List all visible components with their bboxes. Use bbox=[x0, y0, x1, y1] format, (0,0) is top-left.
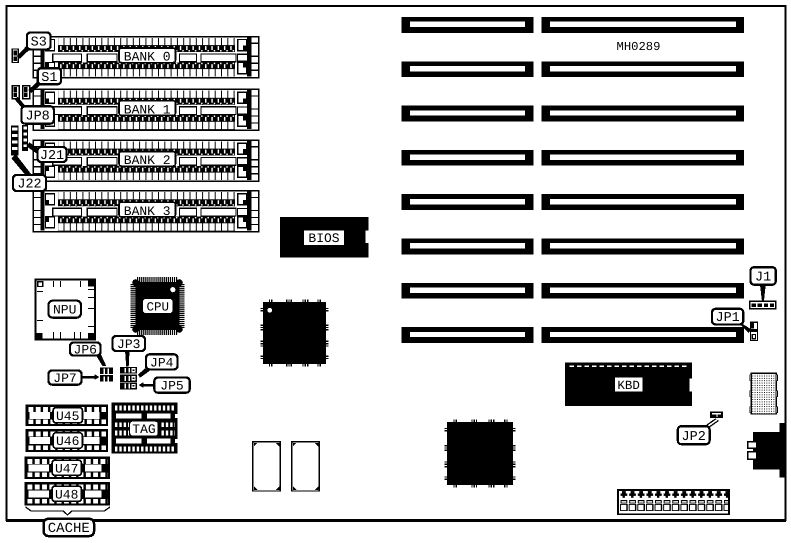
svg-text:JP8: JP8 bbox=[25, 110, 49, 125]
svg-text:BANK 1: BANK 1 bbox=[124, 102, 171, 117]
svg-text:JP3: JP3 bbox=[117, 337, 140, 352]
svg-text:BIOS: BIOS bbox=[308, 231, 339, 246]
svg-text:JP1: JP1 bbox=[715, 311, 739, 326]
svg-text:S3: S3 bbox=[31, 36, 47, 51]
svg-text:KBD: KBD bbox=[617, 379, 640, 393]
svg-text:BANK 0: BANK 0 bbox=[124, 50, 171, 65]
svg-text:JP6: JP6 bbox=[74, 342, 97, 357]
svg-text:JP7: JP7 bbox=[53, 371, 76, 386]
svg-text:U45: U45 bbox=[56, 409, 79, 424]
svg-text:NPU: NPU bbox=[53, 302, 76, 317]
svg-text:JP2: JP2 bbox=[682, 430, 706, 445]
svg-text:TAG: TAG bbox=[132, 422, 155, 437]
svg-text:J22: J22 bbox=[17, 178, 41, 193]
svg-text:U46: U46 bbox=[56, 434, 79, 449]
svg-text:U48: U48 bbox=[55, 487, 78, 502]
svg-text:BANK 2: BANK 2 bbox=[124, 153, 171, 168]
svg-text:S1: S1 bbox=[41, 71, 57, 86]
svg-text:J21: J21 bbox=[40, 149, 64, 164]
svg-text:CPU: CPU bbox=[146, 300, 169, 314]
svg-text:JP5: JP5 bbox=[160, 379, 183, 394]
svg-text:MH0289: MH0289 bbox=[617, 40, 661, 54]
svg-text:CACHE: CACHE bbox=[48, 521, 90, 537]
svg-text:BANK 3: BANK 3 bbox=[124, 204, 171, 219]
svg-text:U47: U47 bbox=[55, 461, 78, 476]
svg-text:J1: J1 bbox=[755, 271, 771, 286]
svg-text:JP4: JP4 bbox=[150, 355, 174, 370]
